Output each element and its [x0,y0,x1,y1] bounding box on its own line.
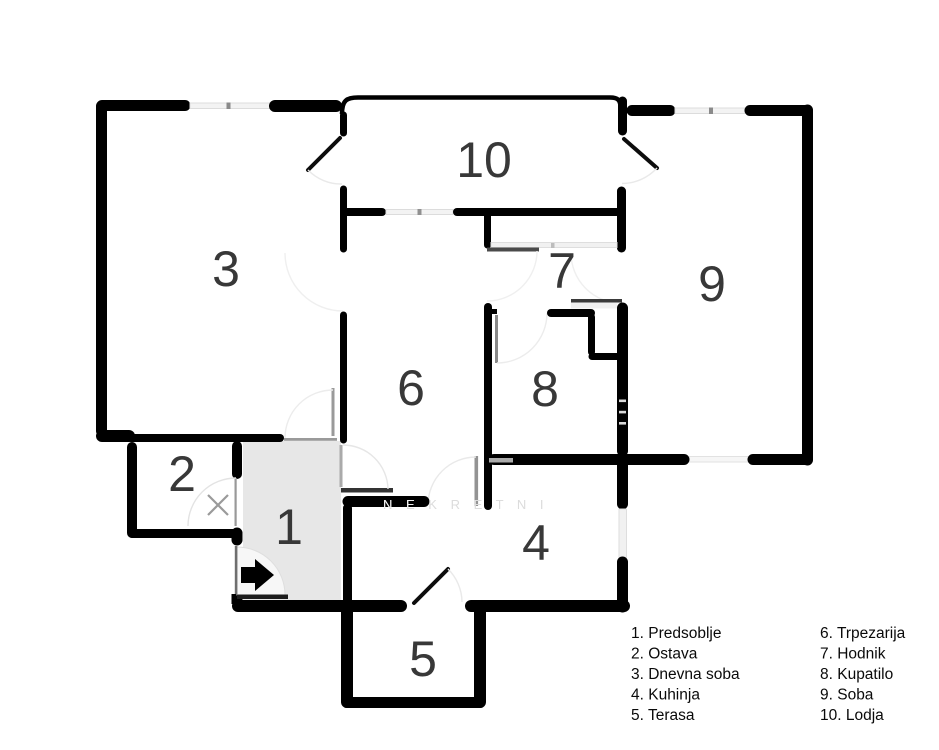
svg-text:4: 4 [522,515,550,571]
svg-text:2. Ostava: 2. Ostava [631,646,698,663]
svg-text:3: 3 [212,241,240,297]
svg-text:6: 6 [397,360,425,416]
svg-text:2: 2 [168,446,196,502]
svg-text:8. Kupatilo: 8. Kupatilo [820,666,893,683]
svg-text:9. Soba: 9. Soba [820,687,874,704]
svg-text:7. Hodnik: 7. Hodnik [820,646,886,663]
svg-text:4. Kuhinja: 4. Kuhinja [631,687,700,704]
svg-text:10: 10 [456,132,512,188]
svg-text:3. Dnevna soba: 3. Dnevna soba [631,666,740,683]
svg-text:7: 7 [548,243,576,299]
svg-text:6. Trpezarija: 6. Trpezarija [820,625,906,642]
svg-text:1: 1 [275,499,303,555]
svg-text:10. Lodja: 10. Lodja [820,707,884,724]
svg-text:9: 9 [698,256,726,312]
svg-text:5. Terasa: 5. Terasa [631,707,695,724]
svg-text:1. Predsoblje: 1. Predsoblje [631,625,721,642]
svg-text:8: 8 [531,361,559,417]
svg-text:5: 5 [409,631,437,687]
